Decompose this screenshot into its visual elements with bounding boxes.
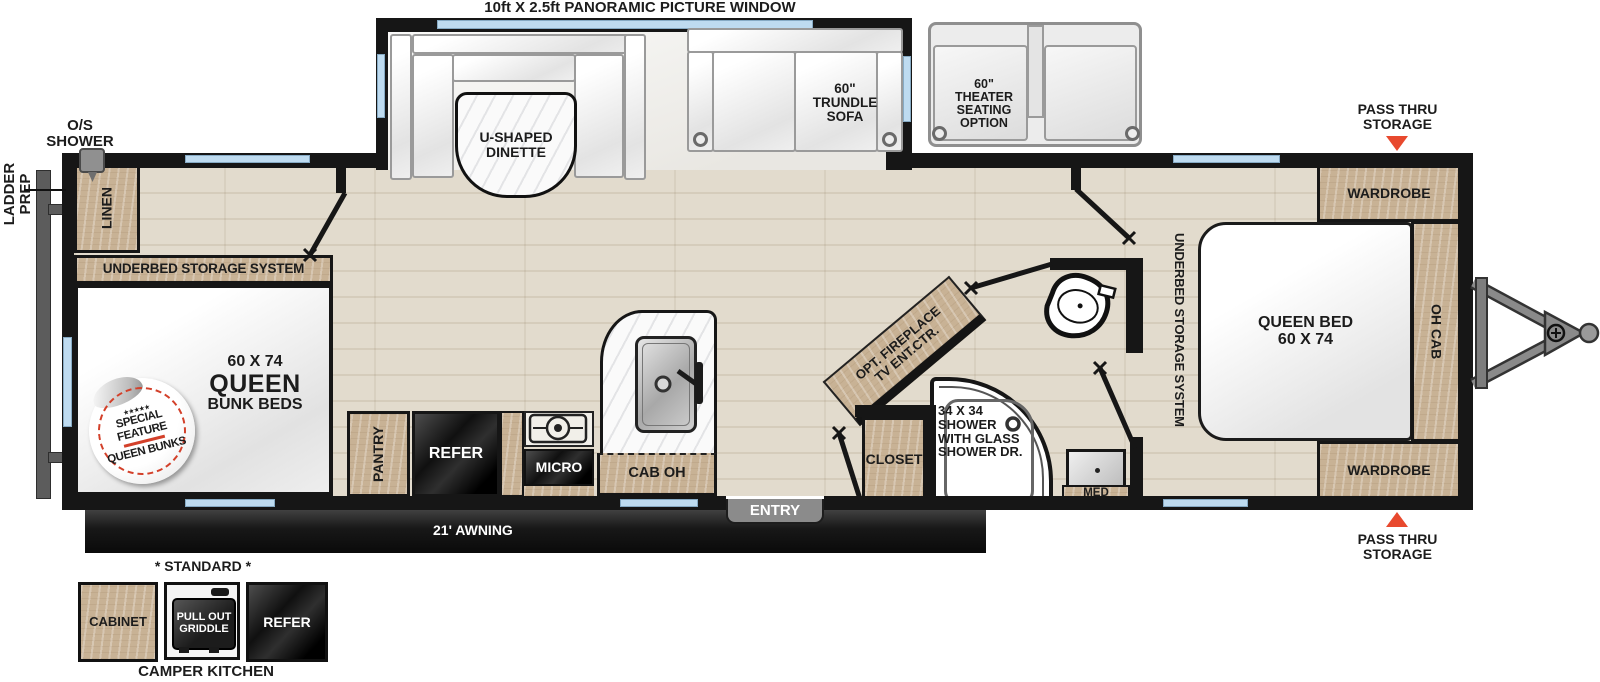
outside-shower-fixture <box>79 148 105 173</box>
window-bottom-kitchen <box>620 499 698 507</box>
window-top-bedroom <box>1173 155 1280 163</box>
pass-thru-bottom-arrow-icon <box>1386 512 1408 527</box>
ladder-prep-label: LADDER PREP <box>1 154 35 234</box>
pass-thru-storage-top-label: PASS THRU STORAGE <box>1340 101 1455 133</box>
sofa-grommet-right <box>882 132 897 147</box>
microwave: MICRO <box>524 449 594 486</box>
theater-seat-right <box>1044 45 1137 141</box>
camper-refer-label: REFER <box>263 615 310 630</box>
standard-label: * STANDARD * <box>130 558 276 574</box>
pass-thru-top-arrow-icon <box>1386 136 1408 151</box>
underbed-storage-strip: UNDERBED STORAGE SYSTEM <box>74 255 333 284</box>
refrigerator: REFER <box>412 411 500 497</box>
pass-thru-storage-bottom-label: PASS THRU STORAGE <box>1340 531 1455 563</box>
counter-filler <box>500 411 524 497</box>
closet-label: CLOSET <box>866 452 923 467</box>
griddle-foot-right <box>209 647 219 653</box>
dinette-table: U-SHAPED DINETTE <box>455 92 577 198</box>
med-knob <box>1095 468 1100 473</box>
pantry: PANTRY <box>347 411 410 497</box>
med-mirror <box>1066 449 1126 489</box>
bunk-size-text-block: 60 X 74 QUEEN BUNK BEDS <box>180 354 330 414</box>
pantry-label: PANTRY <box>371 426 386 482</box>
refer-label: REFER <box>429 446 483 463</box>
griddle-foot-left <box>179 647 189 653</box>
camper-kitchen-title: CAMPER KITCHEN <box>118 664 294 680</box>
sofa-back <box>687 28 903 53</box>
dinette-bench-right-seat <box>574 54 624 178</box>
camper-cabinet-label: CABINET <box>89 615 147 629</box>
wardrobe-bottom-label: WARDROBE <box>1347 463 1430 478</box>
cooktop <box>524 411 594 447</box>
entry-door-tab: ENTRY <box>726 499 824 524</box>
cab-oh-label: CAB OH <box>628 466 685 481</box>
shower-label: 34 X 34 SHOWER WITH GLASS SHOWER DR. <box>938 404 1042 459</box>
bedroom-underbed-label: UNDERBED STORAGE SYSTEM <box>1172 233 1186 427</box>
micro-label: MICRO <box>536 460 583 475</box>
queen-bed-label: QUEEN BED 60 X 74 <box>1258 315 1353 349</box>
oh-cab-label: OH CAB <box>1429 304 1444 359</box>
panoramic-window-label: 10ft X 2.5ft PANORAMIC PICTURE WINDOW <box>380 0 900 16</box>
griddle-lid-handle <box>211 588 229 596</box>
camper-cabinet: CABINET <box>78 582 158 662</box>
queen-bed: QUEEN BED 60 X 74 <box>1198 222 1413 441</box>
window-bottom-bedroom <box>1163 499 1248 507</box>
rear-bumper <box>36 170 51 499</box>
wardrobe-top-label: WARDROBE <box>1347 186 1430 201</box>
sofa-grommet-left <box>693 132 708 147</box>
window-bottom-bunk <box>185 499 275 507</box>
awning-bar: 21' AWNING <box>85 508 986 553</box>
window-rear-left <box>63 337 72 427</box>
slideout-window-left <box>377 54 385 118</box>
griddle-body: PULL OUT GRIDDLE <box>172 598 236 650</box>
sink-inner-line <box>642 343 690 426</box>
awning-label: 21' AWNING <box>433 508 513 553</box>
hitch <box>1473 278 1598 388</box>
wall-bottom-right <box>824 496 1473 510</box>
oh-cab: OH CAB <box>1411 221 1461 442</box>
theater-grommet-right <box>1125 126 1140 141</box>
rv-floorplan-diagram: 10ft X 2.5ft PANORAMIC PICTURE WINDOW O/… <box>0 0 1600 682</box>
bunk-name-label: QUEEN <box>180 371 330 398</box>
wardrobe-top: WARDROBE <box>1317 164 1461 222</box>
underbed-storage-label: UNDERBED STORAGE SYSTEM <box>103 262 304 276</box>
theater-seating-label: 60" THEATER SEATING OPTION <box>928 68 1040 140</box>
wall-right <box>1459 153 1473 510</box>
dinette-label: U-SHAPED DINETTE <box>479 130 552 160</box>
camper-refer: REFER <box>246 582 328 662</box>
entry-label: ENTRY <box>750 503 800 519</box>
closet: CLOSET <box>862 417 926 501</box>
hitch-ball <box>1580 324 1598 342</box>
kitchen-sink <box>635 336 697 433</box>
wardrobe-bottom: WARDROBE <box>1317 441 1461 499</box>
window-top-left <box>185 155 310 163</box>
wall-left <box>62 153 74 510</box>
pull-out-griddle: PULL OUT GRIDDLE <box>164 582 240 660</box>
trundle-sofa-label: 60" TRUNDLE SOFA <box>775 76 915 130</box>
dinette-bench-top-seat <box>452 54 576 82</box>
outside-shower-label: O/S SHOWER <box>28 116 132 152</box>
tongue-jack <box>1548 325 1564 341</box>
dinette-bench-left-back <box>390 34 412 180</box>
micro-base <box>524 486 594 496</box>
griddle-label: PULL OUT GRIDDLE <box>177 612 232 635</box>
dinette-bench-top-back <box>412 34 644 54</box>
bunk-size-label: 60 X 74 <box>180 354 330 371</box>
dinette-bench-left-seat <box>412 54 454 178</box>
bedroom-underbed-label-wrap: UNDERBED STORAGE SYSTEM <box>1166 225 1192 435</box>
linen-cabinet: LINEN <box>74 163 140 253</box>
bunk-sub-label: BUNK BEDS <box>180 397 330 414</box>
cab-overhead: CAB OH <box>597 453 717 496</box>
linen-label: LINEN <box>100 187 115 229</box>
dinette-bench-right-back <box>624 34 646 180</box>
